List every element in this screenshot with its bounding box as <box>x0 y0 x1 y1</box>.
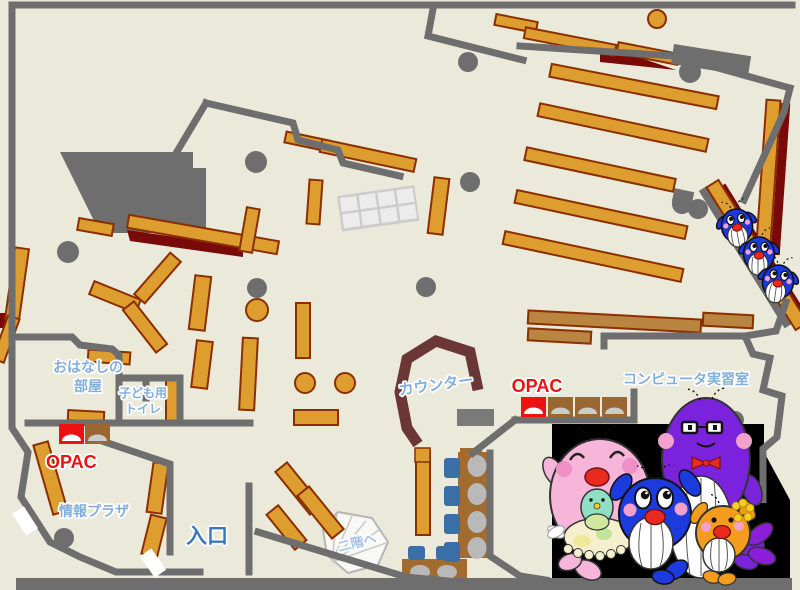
chair <box>436 546 453 560</box>
round-table <box>648 10 666 28</box>
library-floor-map: おはなしの 部屋 子ども用 トイレ OPAC 情報プラザ 入口 カウンター OP… <box>0 0 800 590</box>
round-table <box>246 299 268 321</box>
pillar <box>460 172 480 192</box>
chair <box>408 546 425 560</box>
bookshelf <box>296 303 310 358</box>
label-info-plaza: 情報プラザ <box>59 503 129 519</box>
bookshelf <box>166 380 178 422</box>
label-entrance: 入口 <box>186 525 228 548</box>
pillar <box>247 278 267 298</box>
label-storytelling-room-line1: おはなしの <box>53 359 123 375</box>
monitor <box>468 455 487 477</box>
round-table <box>295 373 315 393</box>
pillar <box>245 151 267 173</box>
monitor <box>468 511 487 533</box>
long-table <box>528 328 592 343</box>
pillar <box>416 277 436 297</box>
label-computer-room: コンピュータ実習室 <box>623 371 749 387</box>
bookshelf <box>294 410 338 425</box>
bookshelf <box>306 180 322 225</box>
chair <box>444 486 460 506</box>
counter-desk <box>457 409 494 426</box>
bookshelf <box>416 451 430 535</box>
round-table <box>335 373 355 393</box>
pillar <box>57 241 79 263</box>
monitor <box>468 537 487 559</box>
long-table <box>703 313 754 329</box>
label-kids-toilet-line1: 子ども用 <box>119 386 167 400</box>
label-opac-center: OPAC <box>512 376 563 396</box>
chair <box>444 458 460 478</box>
label-kids-toilet-line2: トイレ <box>125 402 161 416</box>
chair <box>444 514 460 534</box>
monitor <box>468 483 487 505</box>
mascot-baby-whale-icon <box>581 489 613 530</box>
floor-plan-canvas: おはなしの 部屋 子ども用 トイレ OPAC 情報プラザ 入口 カウンター OP… <box>0 0 800 590</box>
bookshelf <box>239 338 258 411</box>
label-opac-left: OPAC <box>46 452 97 472</box>
label-storytelling-room-line2: 部屋 <box>74 378 102 394</box>
pillar <box>458 52 478 72</box>
small-table <box>415 448 430 462</box>
